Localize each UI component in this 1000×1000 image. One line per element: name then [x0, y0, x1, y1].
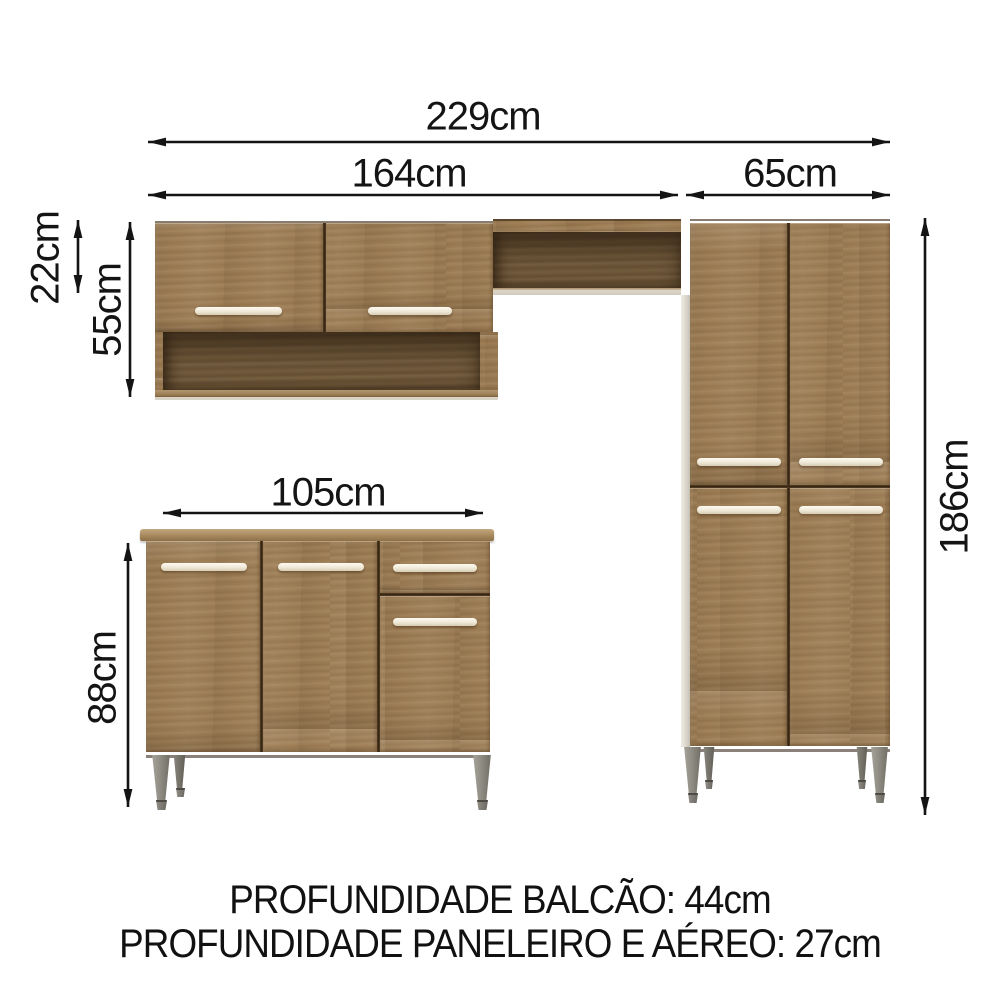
- tall-cabinet-body: [690, 219, 890, 752]
- depth-note-balcao: PROFUNDIDADE BALCÃO: 44cm: [40, 878, 960, 922]
- wall-cabinet-right-door-handle: [368, 307, 452, 315]
- tall-cabinet-front-right-foot: [875, 793, 885, 803]
- tall-cabinet-front-left-leg: [683, 747, 702, 793]
- dim-label-tall-cabinet-width: 65cm: [743, 152, 837, 197]
- wall-cabinet-lower-shelf: [155, 332, 498, 397]
- lower-shelf-left-side: [155, 332, 163, 390]
- wall-cabinet: [155, 219, 681, 397]
- wall-cabinet-left-door-handle: [195, 307, 282, 315]
- dim-label-base-cabinet-width: 105cm: [270, 471, 385, 516]
- tall-cabinet-back-left-foot: [705, 780, 713, 789]
- lower-shelf-interior: [163, 332, 480, 390]
- base-cabinet-door-left: [146, 541, 260, 752]
- wall-cabinet-door-right: [326, 223, 493, 332]
- tall-cabinet-top-left-handle: [697, 458, 781, 466]
- lower-shelf-right-side: [480, 332, 498, 390]
- tall-cabinet-door-top-left: [690, 223, 787, 485]
- product-dimension-diagram: 229cm 164cm 65cm 22cm 55cm 105cm 88cm 18…: [0, 0, 1000, 1000]
- tall-cabinet-left-side-panel: [681, 295, 690, 747]
- tall-cabinet-door-top-right: [790, 223, 890, 485]
- niche-interior: [493, 232, 681, 288]
- wall-cabinet-open-niche: [493, 219, 681, 295]
- tall-cabinet-back-left-leg: [703, 747, 715, 780]
- dim-label-base-cabinet-height: 88cm: [81, 631, 126, 725]
- dim-label-tall-cabinet-height: 186cm: [933, 439, 978, 554]
- base-cabinet-front-left-leg: [151, 755, 171, 800]
- dim-label-upper-row-width: 164cm: [351, 152, 466, 197]
- base-cabinet-right-door-handle: [393, 618, 477, 626]
- base-cabinet: [140, 529, 494, 819]
- base-cabinet-left-door-handle: [161, 563, 247, 571]
- lower-shelf-bottom-panel: [155, 390, 498, 400]
- dim-label-total-width: 229cm: [425, 95, 540, 140]
- wall-cabinet-doors: [155, 221, 493, 336]
- tall-cabinet-door-bottom-right: [790, 488, 890, 746]
- tall-cabinet-front-left-foot: [688, 793, 698, 803]
- base-cabinet-middle-door-handle: [278, 563, 364, 571]
- base-cabinet-back-left-leg: [173, 755, 186, 788]
- tall-cabinet-bottom-left-handle: [697, 506, 781, 514]
- tall-cabinet-bottom-right-handle: [799, 506, 883, 514]
- base-cabinet-front-right-leg: [472, 755, 492, 800]
- base-cabinet-front-left-foot: [156, 800, 167, 810]
- dim-label-niche-height: 22cm: [24, 211, 69, 305]
- tall-cabinet-front-right-leg: [870, 747, 889, 793]
- tall-cabinet-back-right-leg: [856, 747, 868, 780]
- tall-cabinet-door-bottom-left: [690, 488, 787, 746]
- niche-bottom-panel: [493, 288, 681, 295]
- base-cabinet-door-middle: [263, 541, 377, 752]
- tall-cabinet-top-right-handle: [799, 458, 883, 466]
- base-cabinet-front-right-foot: [477, 800, 488, 810]
- dim-label-wall-cabinet-height: 55cm: [86, 263, 131, 357]
- tall-cabinet-back-right-foot: [858, 780, 866, 789]
- base-cabinet-body: [146, 541, 490, 758]
- depth-note-paneleiro-aereo: PROFUNDIDADE PANELEIRO E AÉREO: 27cm: [40, 922, 960, 966]
- base-cabinet-back-left-foot: [176, 788, 185, 797]
- base-cabinet-drawer-handle: [393, 564, 477, 572]
- tall-cabinet: [681, 219, 890, 809]
- wall-cabinet-door-left: [155, 223, 323, 332]
- depth-notes: PROFUNDIDADE BALCÃO: 44cm PROFUNDIDADE P…: [0, 878, 1000, 966]
- base-cabinet-countertop: [140, 529, 494, 541]
